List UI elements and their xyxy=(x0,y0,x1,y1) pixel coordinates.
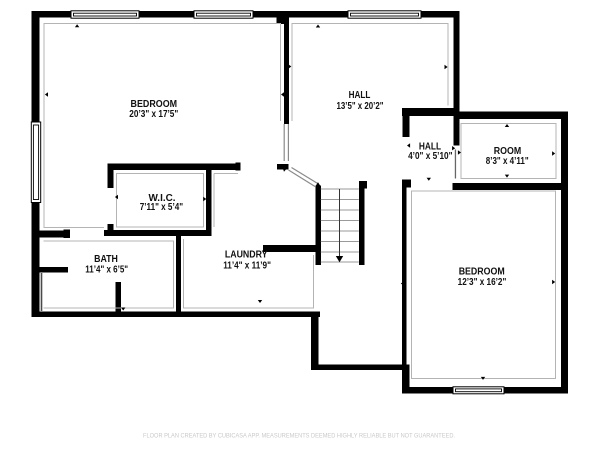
svg-text:11’4" x 6’5": 11’4" x 6’5" xyxy=(85,264,128,275)
svg-text:13’5" x 20’2": 13’5" x 20’2" xyxy=(337,101,384,112)
svg-text:LAUNDRY: LAUNDRY xyxy=(225,250,268,261)
svg-text:12’3" x 16’2": 12’3" x 16’2" xyxy=(458,277,507,288)
svg-text:HALL: HALL xyxy=(349,90,371,101)
svg-text:20’3" x 17’5": 20’3" x 17’5" xyxy=(129,109,178,120)
svg-text:FLOOR PLAN CREATED BY CUBICASA: FLOOR PLAN CREATED BY CUBICASA APP. MEAS… xyxy=(143,434,455,440)
svg-text:4’0" x 5’10": 4’0" x 5’10" xyxy=(408,151,452,162)
svg-text:8’3" x 4’11": 8’3" x 4’11" xyxy=(486,156,529,167)
svg-text:7’11" x 5’4": 7’11" x 5’4" xyxy=(140,202,183,213)
svg-text:11’4" x 11’9": 11’4" x 11’9" xyxy=(223,261,271,272)
svg-text:BEDROOM: BEDROOM xyxy=(459,267,505,278)
